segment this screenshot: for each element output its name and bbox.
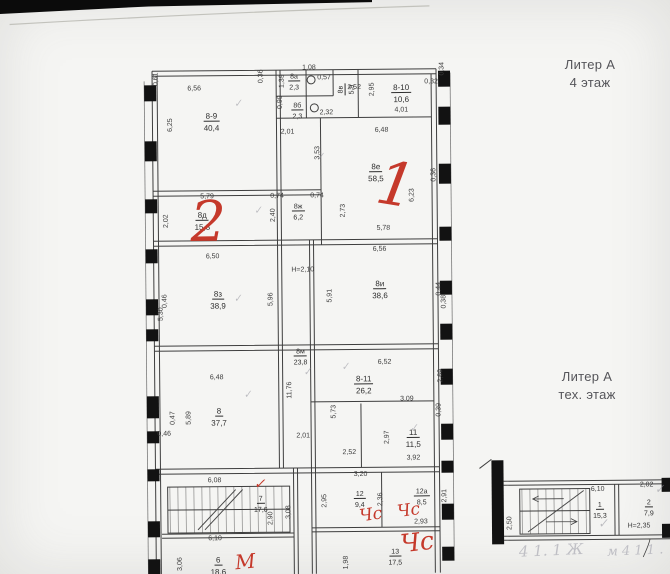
dimension-label: 0,74: [310, 192, 324, 199]
dimension-label: 0,74: [270, 193, 284, 200]
dimension-label: 0,46: [157, 431, 171, 438]
dimension-label: 3,08: [285, 505, 292, 519]
pencil-scribble: 4 1. 1 Ж: [519, 542, 584, 560]
dimension-label: 0,34: [438, 62, 445, 76]
pencil-check-mark: ✓: [654, 482, 665, 495]
dimension-label: 0,44: [435, 282, 442, 296]
dimension-label: 1,39: [279, 74, 286, 88]
pencil-check-mark: ✓: [253, 206, 263, 217]
dimension-label: 2,50: [506, 516, 513, 530]
dimension-label: 6,52: [378, 359, 392, 366]
dimension-label: Н=2,35: [628, 522, 651, 529]
dimension-label: 2,01: [281, 129, 295, 136]
scanned-floorplan-page: 0,616,566,250,361,081,390,570,992,322,52…: [0, 0, 670, 574]
room-label: 8а2,3: [288, 66, 300, 91]
room-label: 8-940,4: [204, 107, 220, 133]
pencil-check-mark: ✓: [233, 99, 243, 110]
red-handwritten-mark: 2: [190, 195, 226, 251]
red-handwritten-mark: 1: [372, 152, 420, 217]
storey-text: тех. этаж: [532, 386, 642, 404]
dimension-label: 0,32: [424, 78, 438, 85]
dimension-label: 2,91: [441, 489, 448, 503]
pencil-check-mark: ✓: [303, 367, 313, 378]
pencil-check-mark: ✓: [233, 294, 243, 305]
dimension-label: 2,52: [342, 449, 356, 456]
dimension-label: 0,57: [317, 74, 331, 81]
dimension-label: 6,48: [375, 127, 389, 134]
dimension-label: 2,01: [296, 432, 310, 439]
red-handwritten-mark: Чс: [399, 528, 435, 557]
pencil-check-mark: ✓: [597, 517, 608, 530]
floor-label-4th-floor: Литер А 4 этаж: [535, 56, 645, 92]
dimension-label: 6,25: [167, 118, 174, 132]
dimension-label: 3,06: [177, 557, 184, 571]
dimension-label: 2,90: [267, 511, 274, 525]
pencil-check-mark: ✓: [409, 423, 419, 434]
dimension-label: 0,36: [257, 69, 264, 83]
dimension-label: 1,08: [302, 64, 316, 71]
dimension-label: 6,48: [210, 374, 224, 381]
room-label: 717,6: [254, 489, 268, 514]
room-label: 8ж6,2: [292, 196, 305, 221]
dimension-label: 2,69: [437, 369, 444, 383]
floor-label-tech-floor: Литер А тех. этаж: [532, 368, 642, 404]
dimension-label: 3,09: [400, 396, 414, 403]
dimension-label: 2,73: [340, 204, 347, 218]
room-label: 8б2,3: [291, 95, 303, 120]
room-label: 618,6: [210, 551, 226, 574]
room-label: 8и38,6: [372, 274, 388, 300]
dimension-label: 11,76: [286, 382, 293, 399]
dimension-label: 2,95: [369, 83, 376, 97]
dimension-label: 6,10: [591, 486, 605, 493]
room-label: 8-1010,6: [391, 78, 411, 104]
dimension-label: 0,61: [153, 72, 160, 86]
pencil-check-mark: ✓: [316, 152, 326, 163]
liter-text: Литер А: [532, 368, 642, 386]
dimension-label: 5,89: [185, 411, 192, 425]
room-label: 8-1126,2: [354, 369, 374, 395]
dimension-label: 2,97: [384, 430, 391, 444]
dimension-label: 3,92: [407, 454, 421, 461]
dimension-label: 0,47: [169, 411, 176, 425]
room-label: 8м23,8: [294, 341, 308, 366]
pencil-check-mark: ✓: [243, 390, 253, 401]
dimension-label: 1,98: [343, 556, 350, 570]
dimension-label: H=2,10: [291, 266, 314, 273]
dimension-label: 2,95: [321, 494, 328, 508]
dimension-label: 0,39: [435, 403, 442, 417]
pencil-scribble: м 4 1 1 .: [607, 543, 664, 558]
room-label: 837,7: [211, 402, 227, 428]
dimension-label: 5,30: [158, 307, 165, 321]
liter-text: Литер А: [535, 56, 645, 74]
room-label: 8в5,9: [331, 84, 356, 96]
red-handwritten-mark: Чс: [396, 501, 421, 521]
dimension-label: 6,10: [208, 535, 222, 542]
dimension-label: 3,20: [354, 471, 368, 478]
dimension-label: 6,56: [373, 246, 387, 253]
storey-text: 4 этаж: [535, 74, 645, 92]
dimension-label: 2,02: [163, 214, 170, 228]
dimension-label: 6,08: [208, 477, 222, 484]
dimension-label: 5,78: [377, 225, 391, 232]
dimension-label: 6,56: [187, 85, 201, 92]
dimension-label: 0,46: [161, 294, 168, 308]
dimension-label: 0,36: [430, 168, 437, 182]
room-label: 27,9: [644, 492, 654, 517]
dimension-label: 5,91: [326, 289, 333, 303]
dimension-label: 4,01: [395, 107, 409, 114]
dimension-label: 5,96: [267, 292, 274, 306]
dimension-label: 2,32: [320, 109, 334, 116]
dimension-label: 5,73: [330, 405, 337, 419]
red-handwritten-mark: М: [234, 551, 256, 573]
room-label: 8з38,9: [210, 285, 226, 311]
pencil-check-mark: ✓: [341, 362, 351, 373]
dimension-label: 0,38: [440, 295, 447, 309]
red-handwritten-mark: ✓: [254, 477, 266, 491]
red-handwritten-mark: Чс: [358, 505, 383, 525]
dimension-label: 0,99: [277, 95, 284, 109]
dimension-label: 2,02: [640, 481, 654, 488]
dimension-label: 2,40: [270, 208, 277, 222]
